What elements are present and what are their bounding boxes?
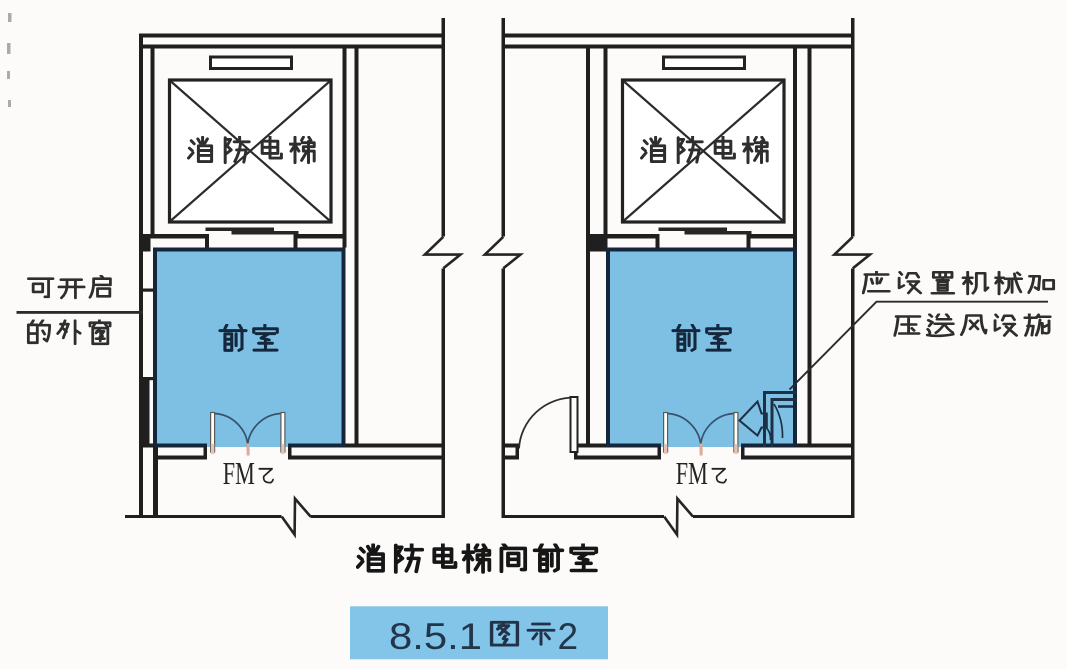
- svg-text:FM: FM: [676, 455, 708, 491]
- svg-text:8.5.1: 8.5.1: [389, 616, 482, 657]
- svg-text:2: 2: [558, 616, 579, 657]
- svg-text:FM: FM: [223, 455, 255, 491]
